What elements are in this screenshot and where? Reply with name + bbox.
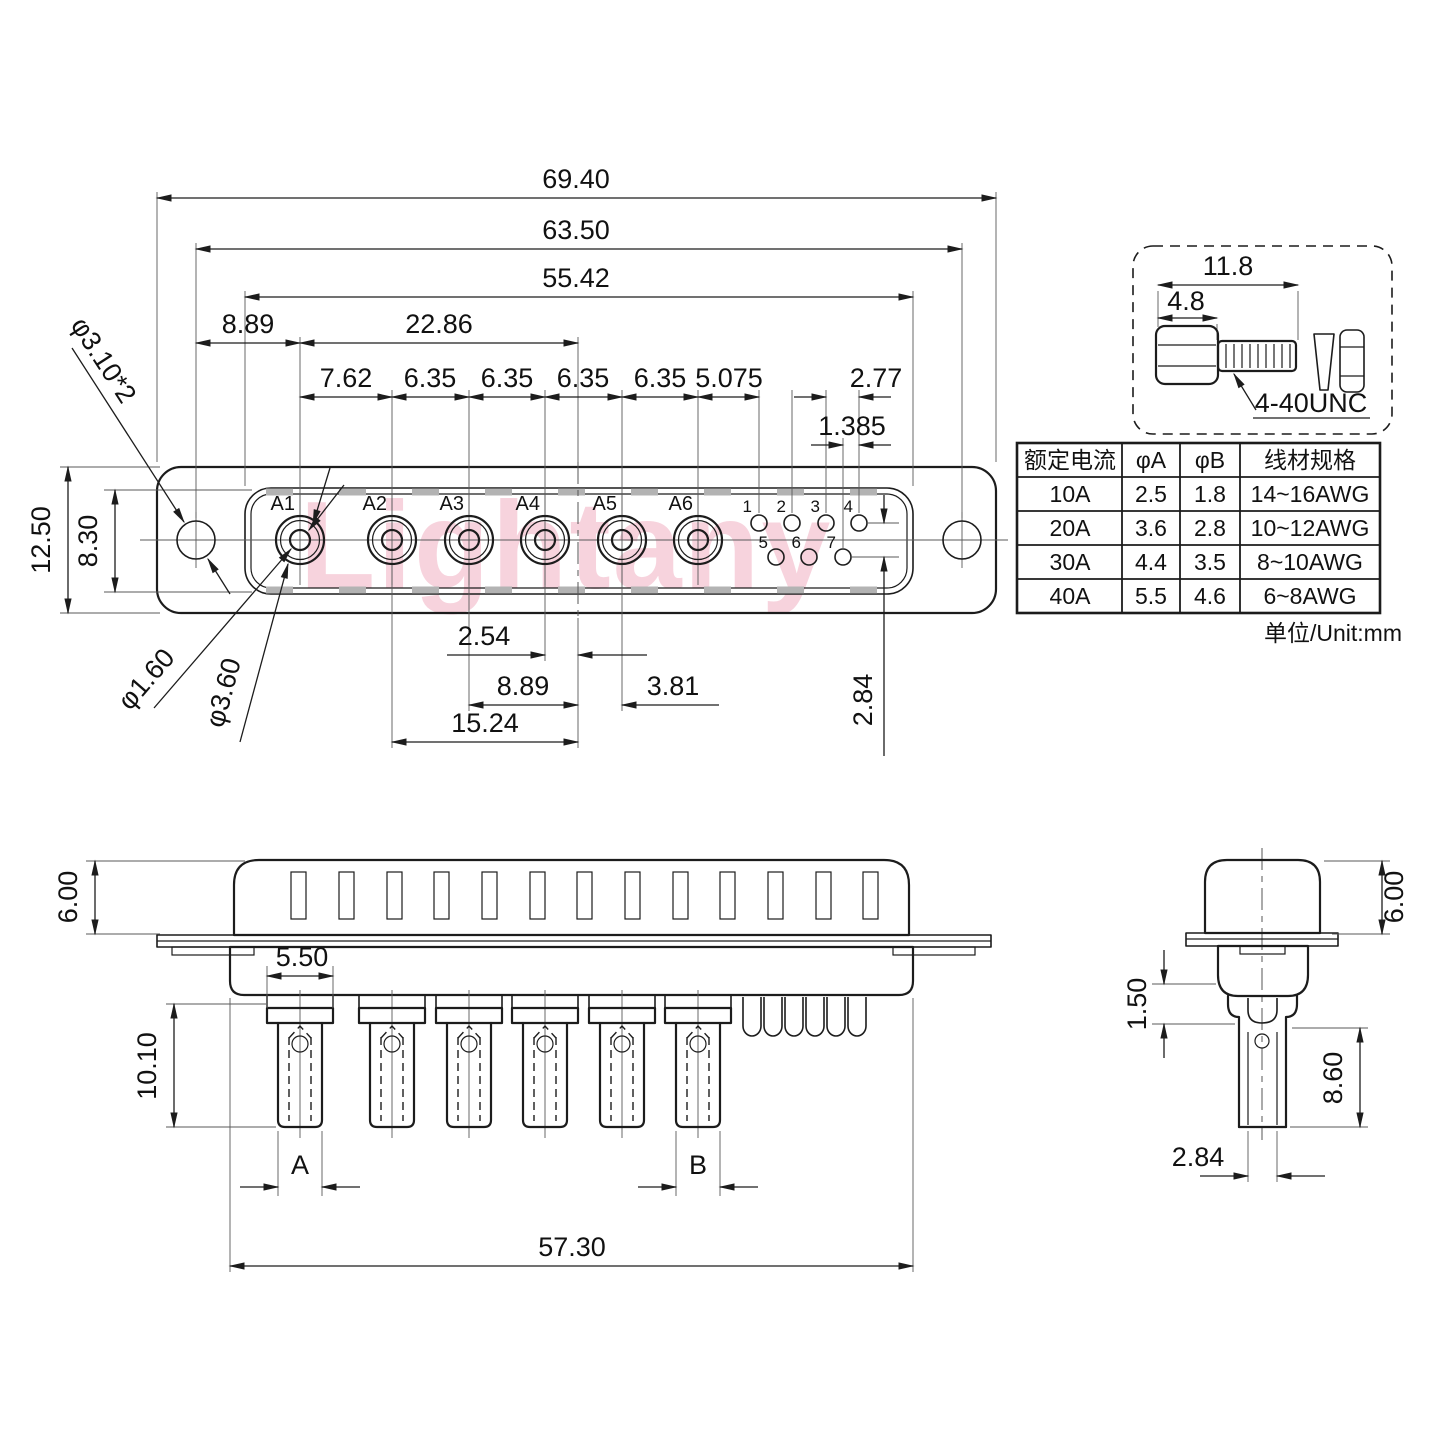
cell-phia-40a: 5.5 <box>1135 583 1167 609</box>
dim-pitch-7-62: 7.62 <box>320 363 373 393</box>
cell-phib-10a: 1.8 <box>1194 481 1226 507</box>
dim-label-a: A <box>291 1150 309 1180</box>
signal-solder-cups <box>743 997 866 1036</box>
pin-label-a4: A4 <box>516 493 540 515</box>
table-row-10a: 10A 2.5 1.8 14~16AWG <box>1050 481 1370 507</box>
cell-phia-10a: 2.5 <box>1135 481 1167 507</box>
cell-current-40a: 40A <box>1050 583 1092 609</box>
dim-1-385: 1.385 <box>818 411 886 441</box>
table-header-current: 额定电流 <box>1024 447 1116 473</box>
cell-current-30a: 30A <box>1050 549 1092 575</box>
screw-detail: 11.8 4.8 4-40UNC <box>1133 246 1392 434</box>
flange-tab-left <box>172 947 254 955</box>
cell-wire-10a: 14~16AWG <box>1251 481 1370 507</box>
dim-2-84-top: 2.84 <box>848 674 878 727</box>
dim-4-8: 4.8 <box>1167 286 1205 316</box>
dim-6-00-right: 6.00 <box>1379 871 1409 924</box>
dim-15-24: 15.24 <box>451 708 519 738</box>
leader-mount-hole-dia: φ3.10*2 <box>65 312 142 409</box>
unit-note: 单位/Unit:mm <box>1264 620 1402 646</box>
cell-wire-30a: 8~10AWG <box>1257 549 1363 575</box>
cell-current-20a: 20A <box>1050 515 1092 541</box>
cell-phib-30a: 3.5 <box>1194 549 1226 575</box>
dimensions-side-view: 6.00 5.50 10.10 A B 57.30 <box>53 861 913 1272</box>
shroud-slots <box>291 872 878 919</box>
signal-label-4: 4 <box>844 497 853 516</box>
table-row-20a: 20A 3.6 2.8 10~12AWG <box>1050 515 1370 541</box>
signal-label-5: 5 <box>759 533 768 552</box>
dim-22-86: 22.86 <box>405 309 473 339</box>
side-view: 6.00 5.50 10.10 A B 57.30 <box>53 860 991 1272</box>
dim-pitch-6-35-3: 6.35 <box>557 363 610 393</box>
dim-8-89-b: 8.89 <box>497 671 550 701</box>
dim-pitch-2-77: 2.77 <box>850 363 903 393</box>
screw-bit-front <box>1314 334 1334 390</box>
table-row-30a: 30A 4.4 3.5 8~10AWG <box>1050 549 1363 575</box>
top-view: A1 A2 A3 A4 A5 A6 1 2 3 4 5 6 7 <box>26 164 1008 756</box>
table-header-phi-b: φB <box>1195 447 1225 473</box>
extension-lines-top <box>60 192 996 748</box>
dim-11-8: 11.8 <box>1203 251 1254 281</box>
drawing-page: Lightany A1 A2 A3 A4 A5 A6 <box>0 0 1440 1440</box>
dim-8-89: 8.89 <box>222 309 275 339</box>
dim-pitch-6-35-2: 6.35 <box>481 363 534 393</box>
dim-10-10: 10.10 <box>132 1032 162 1100</box>
cell-phib-40a: 4.6 <box>1194 583 1226 609</box>
drawing-canvas: Lightany A1 A2 A3 A4 A5 A6 <box>0 0 1440 1440</box>
dim-12-50: 12.50 <box>26 506 56 574</box>
cell-phia-20a: 3.6 <box>1135 515 1167 541</box>
dim-57-30: 57.30 <box>538 1232 606 1262</box>
thread-spec-label: 4-40UNC <box>1255 388 1368 418</box>
cell-wire-40a: 6~8AWG <box>1263 583 1356 609</box>
dim-8-60: 8.60 <box>1318 1052 1348 1105</box>
pin-label-a6: A6 <box>669 493 693 515</box>
solder-pin-a1 <box>267 990 333 1138</box>
cell-current-10a: 10A <box>1050 481 1092 507</box>
signal-pin-7 <box>835 549 851 565</box>
thumbscrew-side <box>1156 326 1296 384</box>
leader-pin-outer-dia: φ3.60 <box>200 655 247 730</box>
dim-1-50: 1.50 <box>1122 978 1152 1031</box>
signal-label-3: 3 <box>811 497 820 516</box>
pin-label-a5: A5 <box>593 493 617 515</box>
solder-pin-a2 <box>359 990 425 1138</box>
dim-pitch-5-075: 5.075 <box>695 363 763 393</box>
dim-69-40: 69.40 <box>542 164 610 194</box>
cell-phia-30a: 4.4 <box>1135 549 1167 575</box>
dim-pitch-6-35-4: 6.35 <box>634 363 687 393</box>
dim-55-42: 55.42 <box>542 263 610 293</box>
dim-pitch-6-35-1: 6.35 <box>404 363 457 393</box>
end-view: 6.00 1.50 8.60 2.84 <box>1122 848 1409 1182</box>
leader-pin-bore-dia: φ1.60 <box>112 643 181 716</box>
signal-pin-4 <box>851 515 867 531</box>
solder-pin-a4 <box>512 990 578 1138</box>
pin-label-a3: A3 <box>440 493 464 515</box>
dimensions-end-view: 6.00 1.50 8.60 2.84 <box>1122 861 1409 1182</box>
dim-6-00-left: 6.00 <box>53 871 83 924</box>
screw-bit-side <box>1340 330 1364 392</box>
flange-tab-right <box>893 947 975 955</box>
table-header-wire: 线材规格 <box>1264 447 1356 473</box>
dim-label-b: B <box>689 1150 707 1180</box>
solder-pin-a3 <box>436 990 502 1138</box>
cell-wire-20a: 10~12AWG <box>1251 515 1370 541</box>
dim-2-84-end: 2.84 <box>1172 1142 1225 1172</box>
signal-label-2: 2 <box>777 497 786 516</box>
dim-63-50: 63.50 <box>542 215 610 245</box>
pin-label-a1: A1 <box>271 493 295 515</box>
signal-label-6: 6 <box>792 533 801 552</box>
shroud-outline <box>234 860 909 935</box>
spec-table: 额定电流 φA φB 线材规格 10A 2.5 1.8 14~16AWG 20A… <box>1017 443 1402 646</box>
table-header-phi-a: φA <box>1136 447 1167 473</box>
signal-label-7: 7 <box>827 533 836 552</box>
solder-pin-a5 <box>589 990 655 1138</box>
dim-3-81: 3.81 <box>647 671 700 701</box>
solder-pin-a6 <box>665 990 731 1138</box>
pin-label-a2: A2 <box>363 493 387 515</box>
cell-phib-20a: 2.8 <box>1194 515 1226 541</box>
insulator-body <box>230 947 913 995</box>
dim-8-30: 8.30 <box>73 515 103 568</box>
dim-5-50: 5.50 <box>276 942 329 972</box>
signal-label-1: 1 <box>743 497 752 516</box>
dim-2-54: 2.54 <box>458 621 511 651</box>
table-row-40a: 40A 5.5 4.6 6~8AWG <box>1050 583 1357 609</box>
